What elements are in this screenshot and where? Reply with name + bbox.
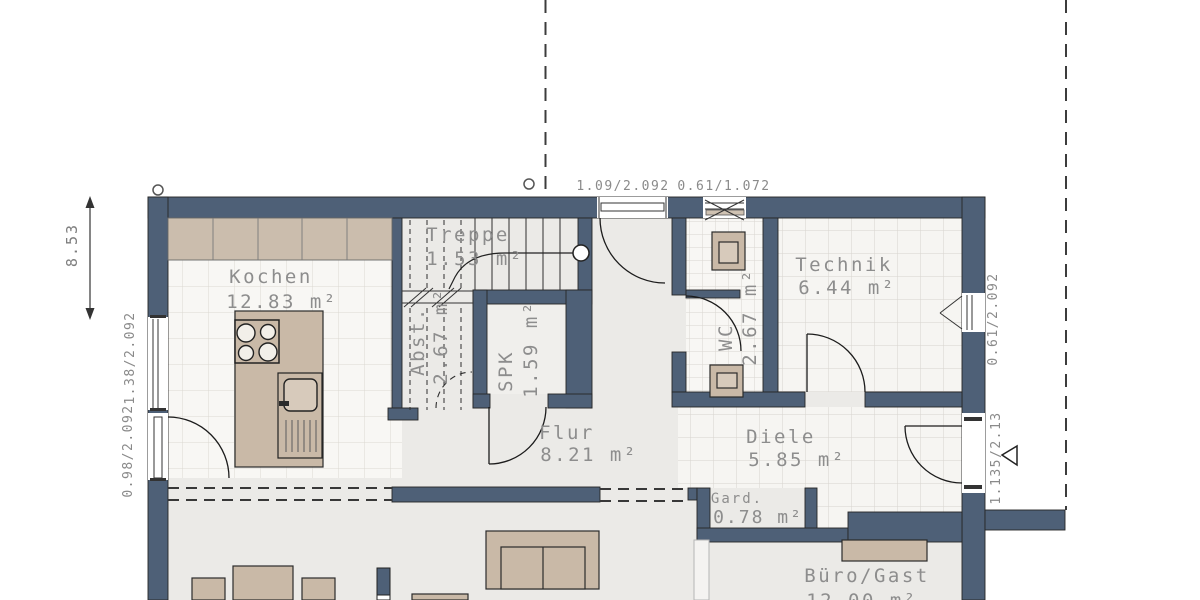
wall-diele-bottom-thick [848,512,962,542]
label-diele: Diele [746,426,816,448]
window-frame-tick [150,315,166,318]
buero-sideboard [842,540,927,561]
wall-exterior-top [148,197,985,218]
entry-door-opening [962,413,985,493]
wall-buero-partition [694,540,709,600]
sink-basin [284,379,317,411]
label-gard-area: 0.78 m² [713,507,803,528]
dimension-arrow [86,196,95,320]
label-treppe: Treppe [426,224,510,246]
sink-tap-icon [279,401,289,406]
wall-living-flur [392,487,600,502]
coffee-table [412,594,468,600]
wc-toilet-bowl [717,373,737,388]
wall-gard-tab [688,488,697,500]
label-flur: Flur [539,422,595,444]
arrow-up-icon [86,196,95,208]
label-abst-area: 2.67 m² [430,287,452,385]
wall-wc-technik [763,218,778,392]
door-frame-tick [150,478,166,481]
burner-icon [239,346,254,361]
dining-chair [192,578,225,600]
dining-table [233,566,293,600]
label-buero-gast: Büro/Gast [804,565,929,587]
wall-kitchen-stair-foot [388,408,418,420]
wall-spk-left [473,290,487,408]
wc-washbasin-bowl [719,242,738,263]
chimney-base [377,595,390,600]
reference-circle-icon [524,179,534,189]
wall-kitchen-stair [392,218,402,408]
wall-spk-bottom-left [473,394,490,408]
burner-icon [261,325,276,340]
stair-walkline-start-icon [573,245,589,261]
wall-stub-right [985,510,1065,530]
wall-wc-left-lower [672,352,686,392]
door-frame-tick [964,417,982,421]
label-diele-area: 5.85 m² [748,449,846,471]
label-technik: Technik [795,254,893,276]
dim-overall-left: 8.53 [63,223,81,267]
dim-terrace-door: 0.98/2.092 [121,404,136,497]
technik-window-opening [962,293,985,332]
label-gard: Gard. [711,491,763,507]
burner-icon [237,324,255,342]
label-flur-area: 8.21 m² [540,444,638,466]
dim-technik-window: 0.61/2.092 [986,272,1001,365]
label-kochen-area: 12.83 m² [226,291,338,313]
chimney [377,568,390,595]
floor-plan-canvas: Kochen 12.83 m² Treppe 1.53 m² Abst. 2.6… [0,0,1200,600]
window-frame-tick [150,408,166,411]
door-frame-tick [964,485,982,489]
burner-icon [259,343,277,361]
label-buero-gast-area: 12.00 m² [806,590,918,600]
front-door-leaf [601,203,664,211]
label-abst: Abst. [407,306,429,376]
label-technik-area: 6.44 m² [798,277,896,299]
arrow-down-icon [86,308,95,320]
wall-spk-bottom-right [548,394,592,408]
floor-technik-tiles [778,218,962,392]
dim-wc-window: 0.61/1.072 [677,179,770,194]
label-wc-area: 2.67 m² [739,268,761,366]
wall-spk-right [566,290,592,408]
label-wc: WC [715,323,737,351]
dim-front-door: 1.09/2.092 [576,179,669,194]
label-spk: SPK [495,350,517,392]
terrace-door-leaf [154,417,162,478]
kitchen-counter [168,218,392,260]
label-kochen: Kochen [229,266,313,288]
wall-exterior-right [962,197,985,600]
reference-circle-icon [153,185,163,195]
dining-chair [302,578,335,600]
dim-kitchen-window: 1.38/2.092 [123,311,138,404]
wall-wc-left-upper [672,218,686,295]
label-spk-area: 1.59 m² [520,300,542,398]
label-treppe-area: 1.53 m² [426,248,524,270]
wall-hall-bottom-right [865,392,962,407]
wall-diele-bottom [697,528,848,542]
entrance-arrow-icon [1002,446,1017,465]
dim-entry-door: 1.135/2.13 [989,411,1004,504]
